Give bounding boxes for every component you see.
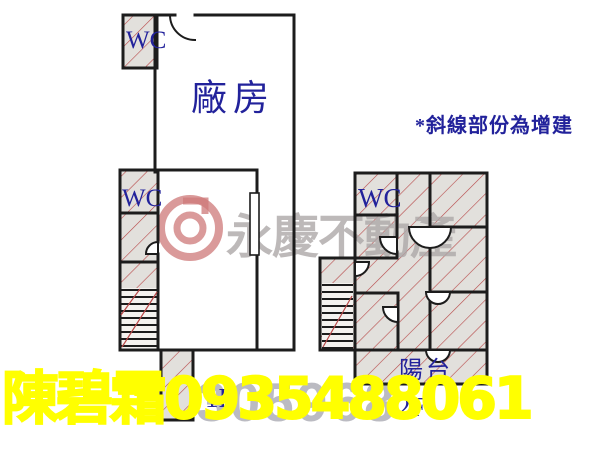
stairs-1f: [120, 289, 158, 347]
wc-label-top-left: WC: [126, 27, 166, 54]
hatch-note: *斜線部份為增建: [415, 113, 573, 137]
wc-label-2f: WC: [358, 183, 402, 213]
agent-contact-watermark: 陳碧霜0935488061: [2, 370, 600, 430]
right-plan-fills: [320, 173, 487, 384]
factory-label: 廠房: [191, 78, 275, 118]
floorplan-image: 永慶不動產 305968: [0, 0, 600, 460]
window-symbol: [250, 193, 259, 255]
wc-label-mid-left: WC: [122, 185, 162, 212]
